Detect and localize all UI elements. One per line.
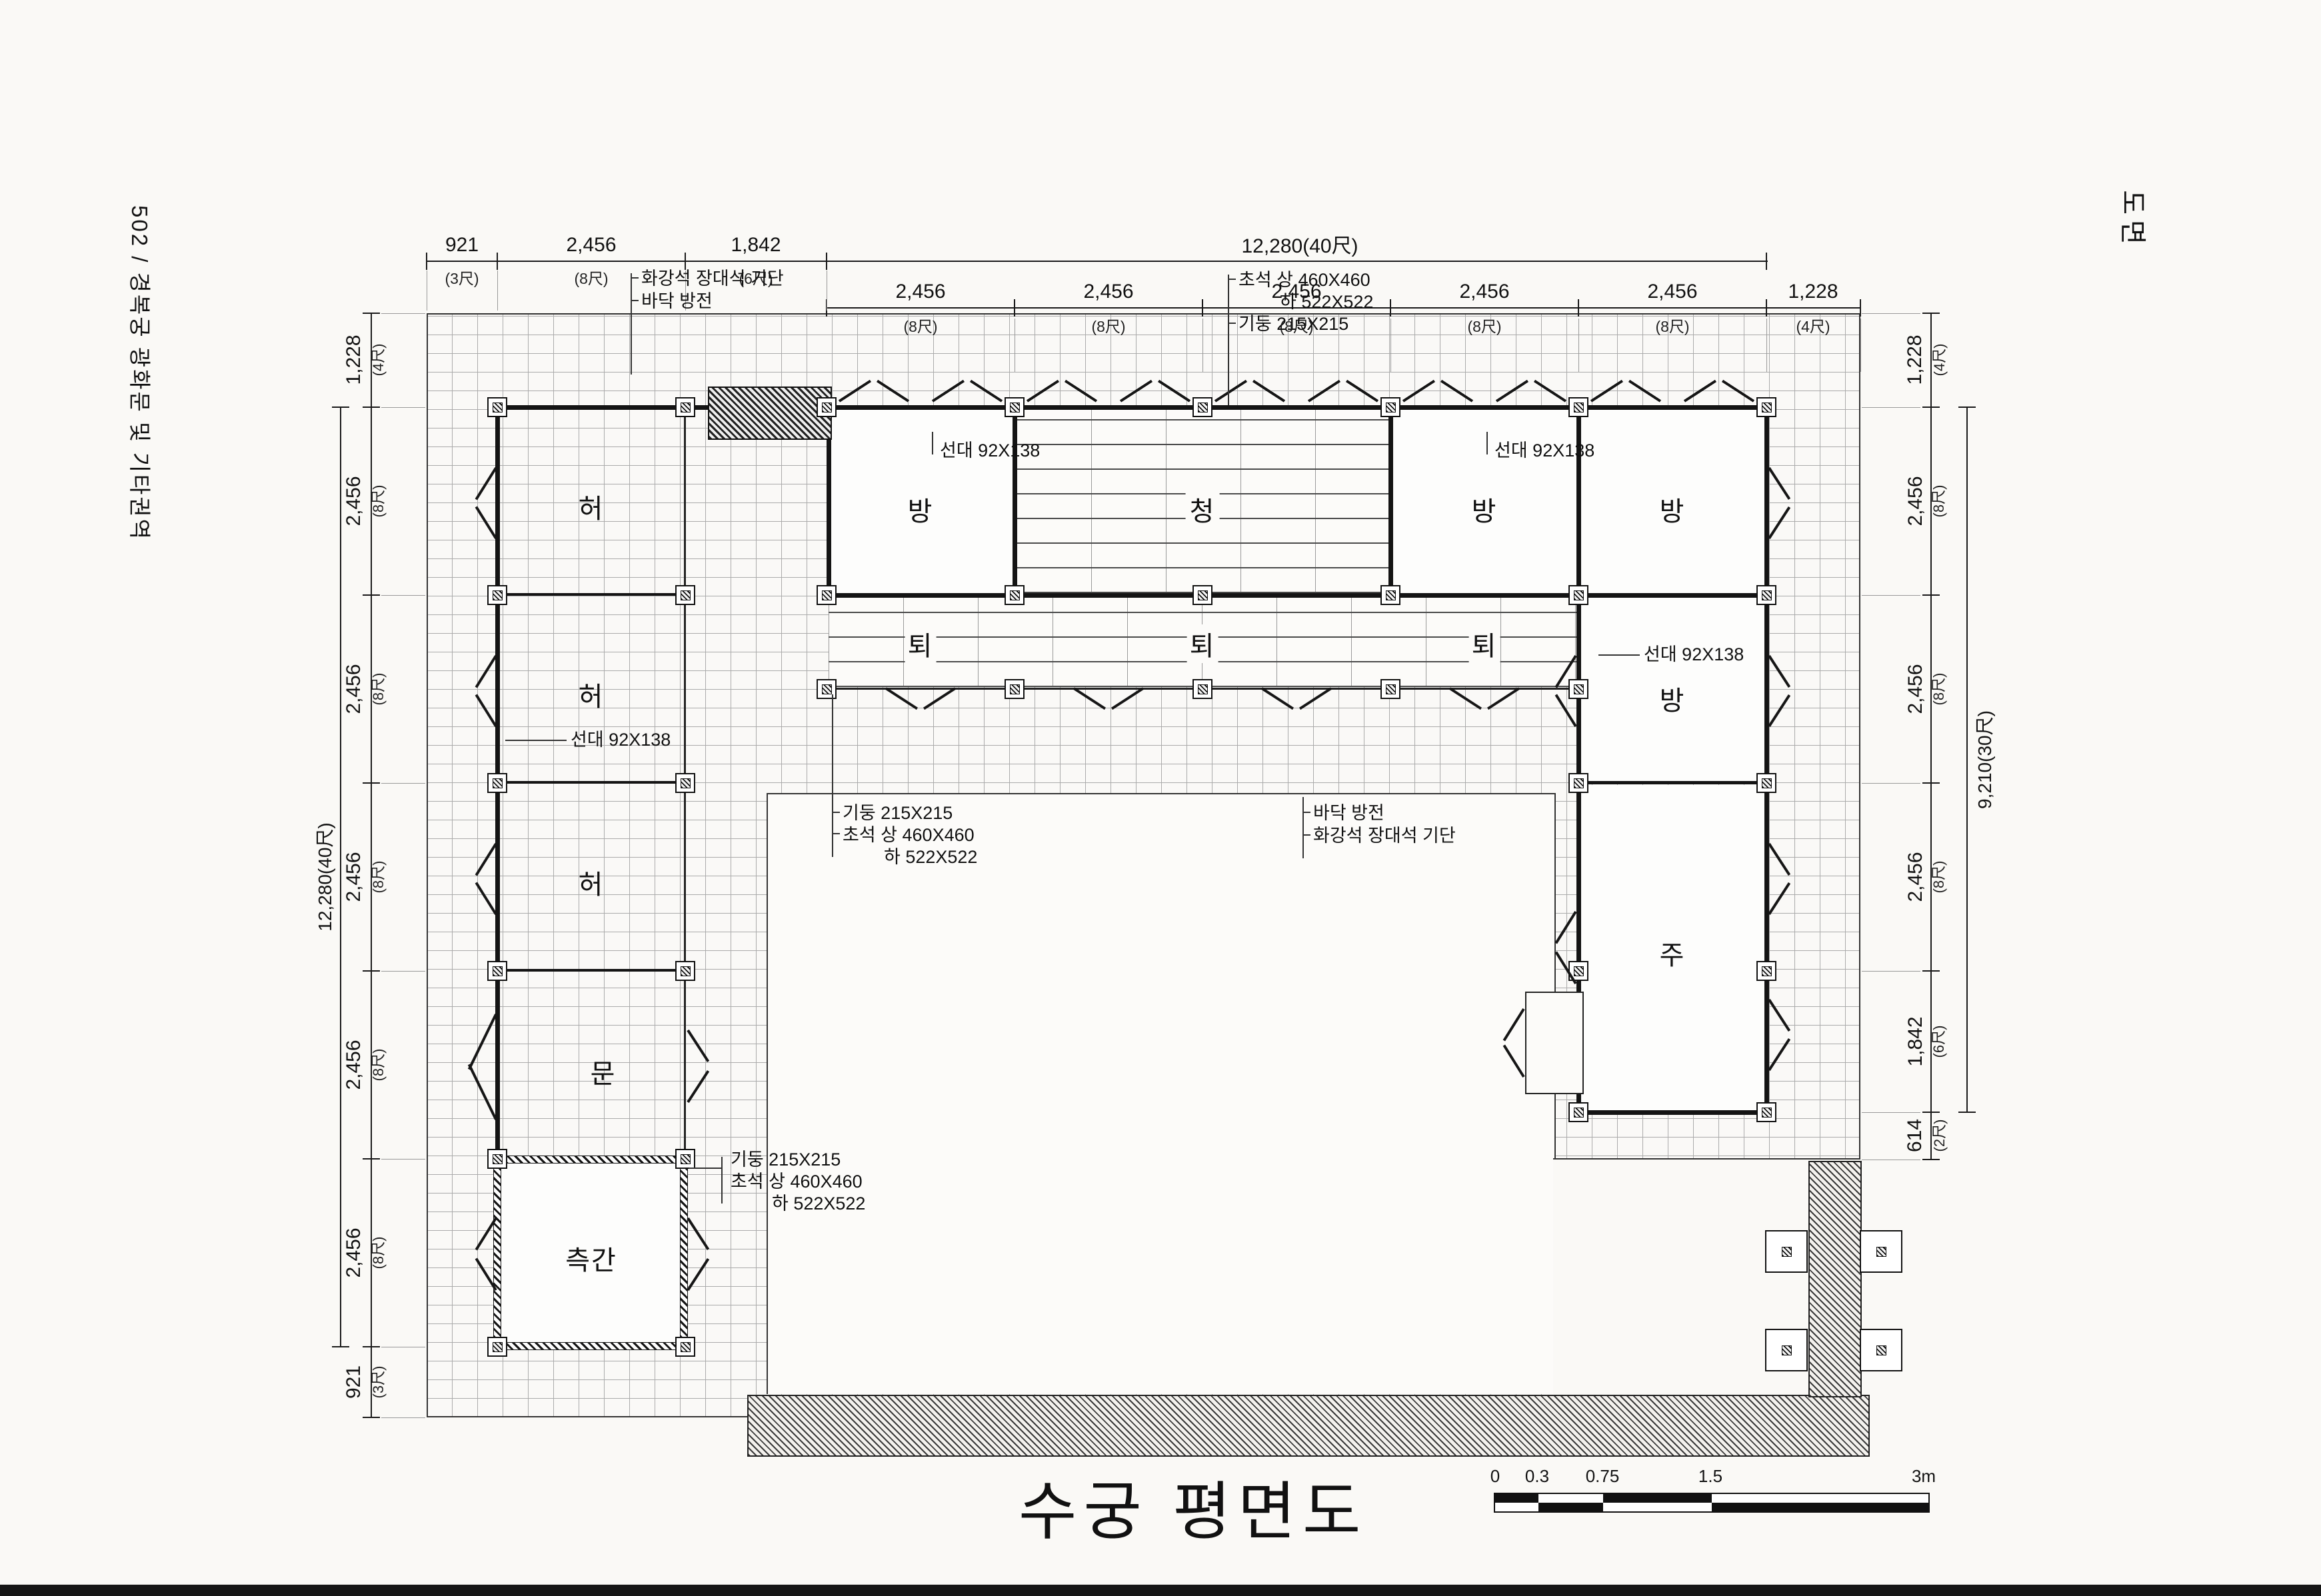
extension-line bbox=[381, 1159, 425, 1160]
scale-label: 0.75 bbox=[1586, 1466, 1620, 1487]
kitchen-annex bbox=[1525, 992, 1584, 1094]
courtyard bbox=[767, 793, 1556, 1394]
dim-pair: 2,456(8尺) bbox=[343, 852, 388, 902]
scale-bar-segment bbox=[1712, 1503, 1928, 1511]
dimension-tick bbox=[1958, 406, 1976, 408]
annotation-bangjeon: 바닥 방전 bbox=[641, 291, 713, 313]
dimension-tick bbox=[1202, 299, 1203, 317]
leader-line bbox=[1228, 323, 1236, 324]
scale-label: 1.5 bbox=[1698, 1466, 1722, 1487]
scale-bar-segment bbox=[1538, 1503, 1603, 1511]
scale-label: 0 bbox=[1490, 1466, 1500, 1487]
wall-hatched bbox=[497, 1156, 687, 1164]
extension-line bbox=[1862, 407, 1920, 408]
annotation-gidung: 기둥 215X215 bbox=[731, 1149, 841, 1171]
dim-unit: (3尺) bbox=[445, 266, 479, 289]
extension-line bbox=[497, 271, 498, 311]
wall bbox=[1576, 1110, 1769, 1115]
dimension-tick bbox=[363, 406, 380, 408]
dimension-tick bbox=[363, 594, 380, 596]
room-label-heo: 허 bbox=[579, 487, 605, 526]
dimension-tick bbox=[332, 1346, 349, 1347]
column bbox=[487, 773, 507, 793]
column bbox=[675, 397, 695, 417]
annotation-choseok-sang: 초석 상 460X460 bbox=[731, 1171, 863, 1193]
extension-line bbox=[1862, 971, 1920, 972]
column bbox=[1380, 679, 1400, 699]
leader-line bbox=[832, 833, 840, 834]
dim-pair: 2,456(8尺) bbox=[343, 476, 388, 526]
gate-post bbox=[1765, 1230, 1808, 1273]
dim-value: 12,280(40尺) bbox=[1241, 229, 1358, 259]
column bbox=[817, 585, 837, 605]
dim-value: 2,456 bbox=[895, 281, 945, 303]
platform-step-edge bbox=[1553, 1158, 1860, 1160]
dim-pair: 2,456(8尺) bbox=[1904, 664, 1948, 714]
leader-line bbox=[505, 740, 567, 741]
column bbox=[1380, 585, 1400, 605]
dim-unit: (8尺) bbox=[1467, 314, 1501, 337]
dim-pair: 2,456(8尺) bbox=[343, 664, 388, 714]
room-label-toe: 퇴 bbox=[1187, 624, 1218, 663]
room-label-toe: 퇴 bbox=[1469, 624, 1500, 663]
page-number-caption: 502 / 경복궁 광화문 및 기타권역 bbox=[125, 205, 157, 541]
leader-line bbox=[1598, 654, 1640, 656]
column bbox=[1568, 1102, 1588, 1122]
column bbox=[675, 1149, 695, 1169]
dimension-tick bbox=[497, 253, 498, 270]
dimension-tick bbox=[826, 253, 827, 270]
column bbox=[487, 1337, 507, 1357]
scale-label: 3m bbox=[1912, 1466, 1936, 1487]
dim-pair: 614(2尺) bbox=[1904, 1119, 1949, 1152]
room-label-bang: 방 bbox=[908, 490, 934, 528]
dim-unit: (4尺) bbox=[1796, 314, 1830, 337]
wall bbox=[827, 593, 1768, 598]
dimension-tick bbox=[1860, 299, 1861, 317]
annotation-bangjeon: 바닥 방전 bbox=[1313, 802, 1384, 824]
extension-line bbox=[1202, 319, 1203, 372]
room-label-cheukgan: 측간 bbox=[565, 1239, 617, 1277]
annotation-choseok-sang: 초석 상 460X460 bbox=[1238, 269, 1370, 291]
dim-pair: 2,456(8尺) bbox=[343, 1040, 388, 1090]
scale-bar-segment bbox=[1495, 1494, 1538, 1503]
leader-line bbox=[631, 277, 639, 279]
annotation-gidan: 화강석 장대석 기단 bbox=[1313, 825, 1456, 847]
dimension-tick bbox=[1014, 299, 1015, 317]
room-label-toe: 퇴 bbox=[905, 624, 937, 663]
extension-line bbox=[1862, 1112, 1920, 1113]
column bbox=[487, 961, 507, 981]
extension-line bbox=[1862, 313, 1920, 314]
leader-line bbox=[1302, 834, 1310, 836]
platform-edge-bottom bbox=[427, 1416, 749, 1417]
extension-line bbox=[1390, 319, 1391, 372]
dimension-tick bbox=[1390, 299, 1391, 317]
column bbox=[487, 397, 507, 417]
dim-pair: 921(3尺) bbox=[343, 1365, 388, 1399]
dimension-tick bbox=[1766, 253, 1767, 270]
scan-edge bbox=[0, 1585, 2321, 1596]
scale-bar-segment bbox=[1603, 1494, 1712, 1503]
wall bbox=[497, 781, 685, 784]
dimension-tick bbox=[1922, 1159, 1940, 1160]
dimension-tick bbox=[1922, 313, 1940, 314]
wall bbox=[1388, 407, 1393, 595]
walkway-hatched bbox=[747, 1395, 1870, 1457]
leader-line bbox=[631, 273, 632, 375]
dimension-tick bbox=[1922, 406, 1940, 408]
dimension-tick bbox=[426, 253, 427, 270]
dim-unit: (8尺) bbox=[1091, 314, 1125, 337]
column bbox=[1568, 397, 1588, 417]
dimension-tick bbox=[363, 1346, 380, 1347]
dim-pair: 1,228(4尺) bbox=[343, 335, 388, 385]
leader-line bbox=[1302, 797, 1304, 858]
dimension-tick bbox=[1922, 1112, 1940, 1113]
column bbox=[1756, 585, 1776, 605]
platform-edge-right bbox=[1859, 313, 1860, 1160]
dimension-line bbox=[340, 407, 341, 1347]
dimension-tick bbox=[332, 406, 349, 408]
wall bbox=[1580, 781, 1766, 784]
dim-pair: 1,228(4尺) bbox=[1904, 335, 1949, 385]
dimension-tick bbox=[363, 313, 380, 314]
dim-pair: 2,456(8尺) bbox=[1904, 476, 1948, 526]
dim-value: 2,456 bbox=[1083, 281, 1133, 303]
column bbox=[1756, 773, 1776, 793]
extension-line bbox=[1860, 319, 1861, 372]
gate-post bbox=[1765, 1329, 1808, 1371]
extension-line bbox=[1862, 783, 1920, 784]
leader-line bbox=[832, 812, 840, 813]
folio-tab-label: 도면 bbox=[2116, 190, 2154, 250]
gate-post bbox=[1860, 1230, 1902, 1273]
platform-edge-left bbox=[427, 313, 428, 1417]
extension-line bbox=[381, 1347, 425, 1347]
column bbox=[675, 1337, 695, 1357]
dimension-tick bbox=[1922, 782, 1940, 784]
extension-line bbox=[827, 271, 827, 311]
extension-line bbox=[1766, 319, 1767, 372]
column bbox=[1005, 397, 1025, 417]
dim-value: 2,456 bbox=[1647, 281, 1697, 303]
wall-block-hatched bbox=[708, 387, 832, 440]
room-label-bang: 방 bbox=[1660, 679, 1686, 718]
column bbox=[1568, 679, 1588, 699]
annotation-gidan: 화강석 장대석 기단 bbox=[641, 268, 784, 290]
wall bbox=[1764, 407, 1769, 1112]
leader-line bbox=[1228, 279, 1236, 280]
column bbox=[487, 1149, 507, 1169]
leader-line bbox=[631, 300, 639, 301]
wall-hatched bbox=[493, 1161, 501, 1346]
extension-line bbox=[381, 783, 425, 784]
wall-hatched bbox=[495, 1342, 689, 1350]
dimension-tick bbox=[1922, 970, 1940, 972]
annotation-gidung: 기둥 215X215 bbox=[1238, 313, 1348, 335]
leader-line bbox=[689, 1168, 723, 1169]
annotation-gidung: 기둥 215X215 bbox=[843, 802, 953, 824]
column bbox=[1005, 585, 1025, 605]
dimension-tick bbox=[1922, 594, 1940, 596]
extension-line bbox=[1862, 1160, 1920, 1160]
annotation-choseok-sang: 초석 상 460X460 bbox=[843, 824, 975, 846]
dimension-line bbox=[1966, 407, 1968, 1112]
room-label-bang: 방 bbox=[1660, 490, 1686, 528]
column bbox=[487, 585, 507, 605]
drawing-canvas: 502 / 경복궁 광화문 및 기타권역 도면 bbox=[0, 0, 2321, 1596]
column bbox=[1756, 961, 1776, 981]
gate-corridor-hatched bbox=[1808, 1161, 1862, 1397]
dimension-tick bbox=[363, 1417, 380, 1418]
scale-label: 0.3 bbox=[1525, 1466, 1549, 1487]
column bbox=[817, 397, 837, 417]
room-label-heo: 허 bbox=[579, 863, 605, 902]
platform-edge-top bbox=[427, 313, 1860, 315]
column bbox=[1568, 585, 1588, 605]
column bbox=[1380, 397, 1400, 417]
dim-value: 1,228 bbox=[1788, 281, 1838, 303]
scale-bar bbox=[1494, 1493, 1930, 1513]
leader-line bbox=[721, 1157, 723, 1203]
room-label-cheong: 청 bbox=[1186, 488, 1220, 530]
column bbox=[675, 961, 695, 981]
column bbox=[1756, 397, 1776, 417]
dim-total-left: 12,280(40尺) bbox=[311, 822, 337, 931]
dimension-tick bbox=[1766, 299, 1767, 317]
annotation-seondae: 선대 92X138 bbox=[940, 440, 1040, 462]
dim-pair: 1,842(6尺) bbox=[1904, 1016, 1948, 1066]
column bbox=[1568, 773, 1588, 793]
dim-value: 1,842 bbox=[731, 234, 781, 257]
annotation-choseok-ha: 하 522X522 bbox=[884, 846, 977, 868]
dim-unit: (8尺) bbox=[1655, 314, 1689, 337]
extension-line bbox=[427, 271, 427, 311]
column bbox=[1005, 679, 1025, 699]
leader-line bbox=[1302, 812, 1310, 813]
extension-line bbox=[1862, 595, 1920, 596]
column bbox=[675, 585, 695, 605]
extension-line bbox=[381, 1417, 425, 1418]
dim-pair: 2,456(8尺) bbox=[343, 1227, 388, 1277]
drawing-title: 수궁 평면도 bbox=[1019, 1461, 1367, 1552]
wall bbox=[497, 593, 685, 596]
gate-post bbox=[1860, 1329, 1902, 1371]
extension-line bbox=[381, 407, 425, 408]
extension-line bbox=[1015, 319, 1015, 372]
dimension-tick bbox=[363, 782, 380, 784]
dimension-tick bbox=[1578, 299, 1579, 317]
dim-total-right: 9,210(30尺) bbox=[1970, 710, 1997, 809]
annotation-seondae: 선대 92X138 bbox=[571, 729, 671, 751]
dimension-line bbox=[427, 261, 1768, 262]
dim-unit: (8尺) bbox=[903, 314, 937, 337]
annotation-seondae: 선대 92X138 bbox=[1494, 440, 1594, 462]
room-label-mun: 문 bbox=[591, 1052, 617, 1091]
dim-pair: 2,456(8尺) bbox=[1904, 852, 1948, 902]
dimension-tick bbox=[363, 970, 380, 972]
annotation-seondae: 선대 92X138 bbox=[1644, 644, 1744, 666]
dim-value: 921 bbox=[445, 234, 479, 257]
column bbox=[1192, 679, 1212, 699]
extension-line bbox=[1578, 319, 1579, 372]
room-label-ju: 주 bbox=[1660, 934, 1686, 972]
room-label-bang: 방 bbox=[1472, 490, 1498, 528]
column bbox=[817, 679, 837, 699]
room-label-heo: 허 bbox=[579, 675, 605, 714]
dim-unit: (8尺) bbox=[574, 266, 608, 289]
annotation-choseok-ha: 하 522X522 bbox=[772, 1193, 865, 1215]
column bbox=[1192, 397, 1212, 417]
wall bbox=[1013, 407, 1017, 595]
column bbox=[1192, 585, 1212, 605]
extension-line bbox=[381, 313, 425, 314]
wall bbox=[497, 969, 685, 972]
extension-line bbox=[381, 971, 425, 972]
column bbox=[675, 773, 695, 793]
leader-line bbox=[1228, 275, 1229, 405]
wall-hatched bbox=[680, 1161, 688, 1346]
dimension-tick bbox=[363, 1158, 380, 1160]
dim-value: 2,456 bbox=[1459, 281, 1509, 303]
leader-line bbox=[1486, 432, 1488, 454]
leader-line bbox=[932, 432, 933, 454]
dimension-tick bbox=[1958, 1112, 1976, 1113]
dim-value: 2,456 bbox=[566, 234, 616, 257]
annotation-choseok-ha: 하 522X522 bbox=[1280, 291, 1373, 313]
extension-line bbox=[381, 595, 425, 596]
column bbox=[1756, 1102, 1776, 1122]
